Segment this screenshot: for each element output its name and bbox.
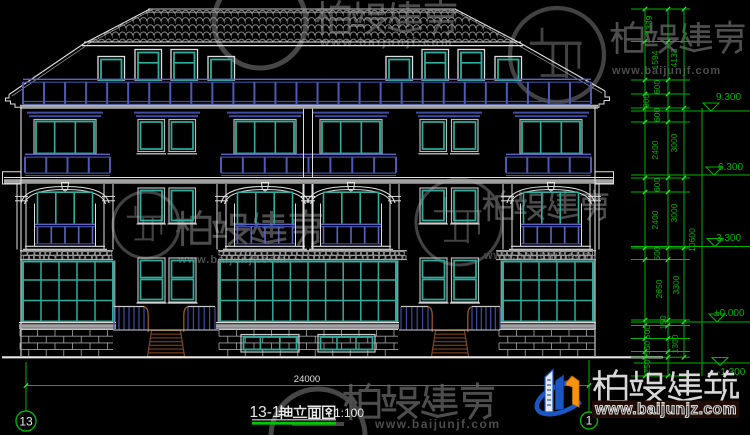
svg-text:600: 600 [652, 80, 662, 94]
svg-text:1594: 1594 [650, 50, 660, 69]
svg-text:500: 500 [642, 325, 652, 339]
svg-text:4133: 4133 [669, 48, 679, 67]
svg-text:600: 600 [652, 178, 662, 192]
svg-text:250: 250 [642, 359, 652, 373]
svg-text:500: 500 [652, 246, 662, 260]
svg-text:1:100: 1:100 [334, 406, 364, 420]
svg-text:1: 1 [586, 414, 593, 428]
svg-text:3300: 3300 [671, 275, 681, 294]
svg-text:2400: 2400 [650, 210, 660, 229]
svg-text:3.300: 3.300 [716, 233, 741, 244]
svg-text:600: 600 [652, 108, 662, 122]
svg-text:3000: 3000 [669, 203, 679, 222]
svg-text:2400: 2400 [650, 140, 660, 159]
svg-text:3000: 3000 [669, 133, 679, 152]
svg-text:13-1: 13-1 [249, 404, 280, 421]
svg-text:6.300: 6.300 [718, 162, 743, 173]
svg-text:www.baijunjz.com: www.baijunjz.com [594, 401, 737, 418]
svg-text:±0.000: ±0.000 [714, 308, 745, 319]
svg-text:24000: 24000 [294, 374, 320, 385]
svg-text:1300: 1300 [670, 334, 680, 353]
svg-text:10600: 10600 [687, 228, 697, 252]
svg-text:2650: 2650 [654, 279, 664, 298]
svg-text:www.baijunjf.com: www.baijunjf.com [611, 65, 721, 77]
svg-text:9.300: 9.300 [716, 92, 741, 103]
svg-text:1339: 1339 [644, 15, 654, 34]
svg-text:13: 13 [19, 415, 33, 429]
svg-text:550: 550 [642, 341, 652, 355]
svg-text:600: 600 [641, 94, 651, 108]
svg-text:www.baijunjf.com: www.baijunjf.com [374, 417, 501, 431]
svg-text:-1.300: -1.300 [717, 367, 746, 378]
